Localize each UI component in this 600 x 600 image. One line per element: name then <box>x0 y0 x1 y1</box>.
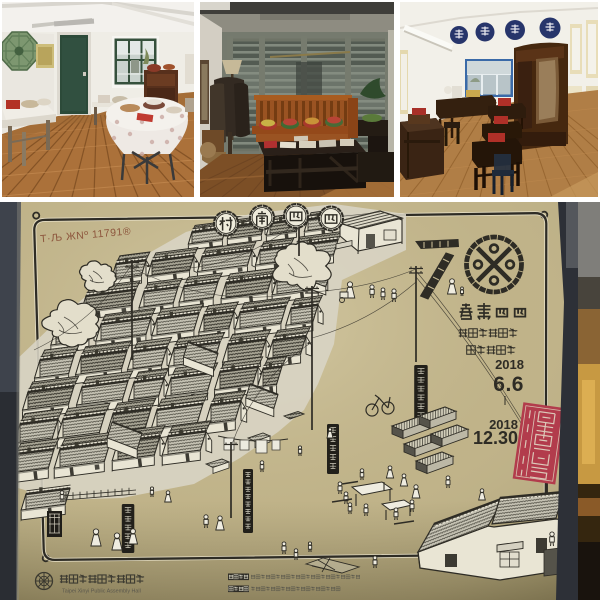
svg-text:6.6: 6.6 <box>493 373 524 396</box>
svg-text:2018: 2018 <box>495 357 524 372</box>
svg-text:12.30: 12.30 <box>473 428 518 448</box>
svg-text:Taipei Xinyi Public Assembly H: Taipei Xinyi Public Assembly Hall <box>62 589 141 595</box>
